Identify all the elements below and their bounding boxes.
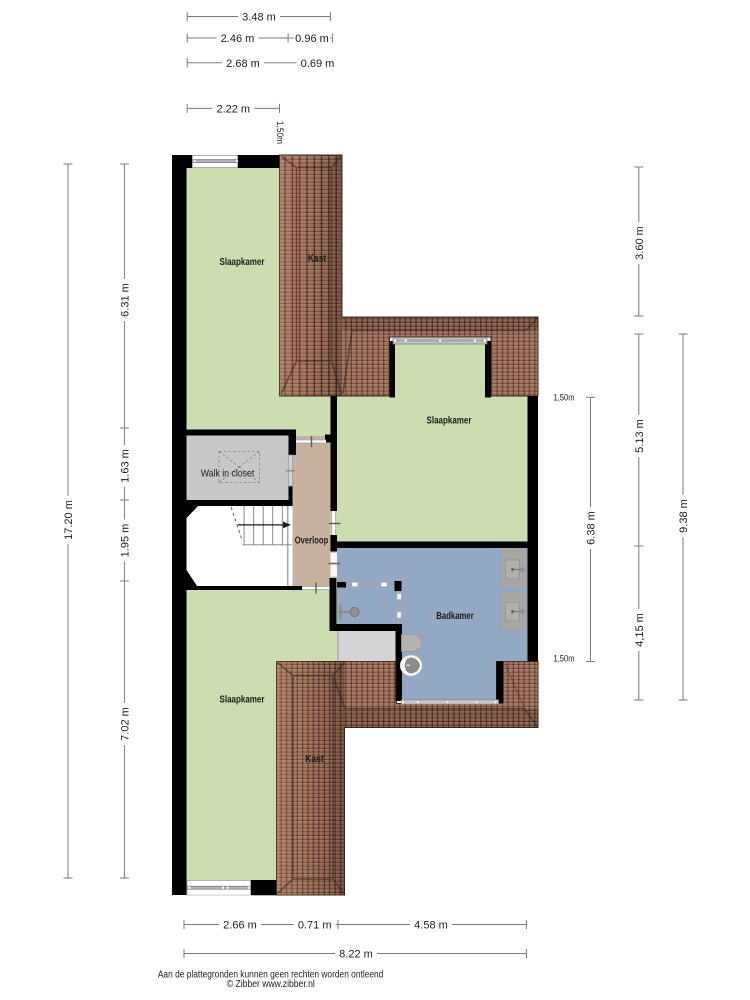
svg-text:Overloop: Overloop [295,536,329,547]
svg-text:1.95 m: 1.95 m [119,524,131,558]
svg-text:3.60 m: 3.60 m [634,226,646,260]
svg-text:0.69 m: 0.69 m [301,58,335,70]
svg-text:2.68 m: 2.68 m [226,58,260,70]
svg-text:1,50m: 1,50m [554,393,575,404]
svg-text:© Zibber www.zibber.nl: © Zibber www.zibber.nl [227,979,315,990]
svg-text:17.20 m: 17.20 m [63,500,75,540]
svg-text:3.48 m: 3.48 m [242,12,276,24]
svg-text:4,15 m: 4,15 m [634,613,646,647]
svg-text:2.66 m: 2.66 m [223,920,257,932]
svg-text:1,50m: 1,50m [274,121,285,144]
svg-text:Slaapkamer: Slaapkamer [220,256,265,268]
svg-text:Slaapkamer: Slaapkamer [427,415,472,427]
svg-text:6.38 m: 6.38 m [586,511,598,545]
svg-text:6.31 m: 6.31 m [119,283,131,317]
svg-text:0.71 m: 0.71 m [298,920,332,932]
svg-text:Badkamer: Badkamer [436,610,474,622]
svg-text:Kast: Kast [308,253,327,265]
svg-text:2.22 m: 2.22 m [216,104,250,116]
svg-text:Kast: Kast [305,753,324,765]
svg-text:8.22 m: 8.22 m [339,949,373,961]
svg-text:1,50m: 1,50m [554,654,575,665]
svg-text:9.38 m: 9.38 m [678,499,690,533]
svg-text:Slaapkamer: Slaapkamer [220,694,265,706]
svg-text:Walk in closet: Walk in closet [201,468,255,480]
svg-text:1.63 m: 1.63 m [119,449,131,483]
svg-text:7.02 m: 7.02 m [119,707,131,741]
svg-text:2.46 m: 2.46 m [221,33,255,45]
svg-text:0.96 m: 0.96 m [295,33,329,45]
svg-text:5.13 m: 5.13 m [634,419,646,453]
svg-text:4.58 m: 4.58 m [414,920,448,932]
